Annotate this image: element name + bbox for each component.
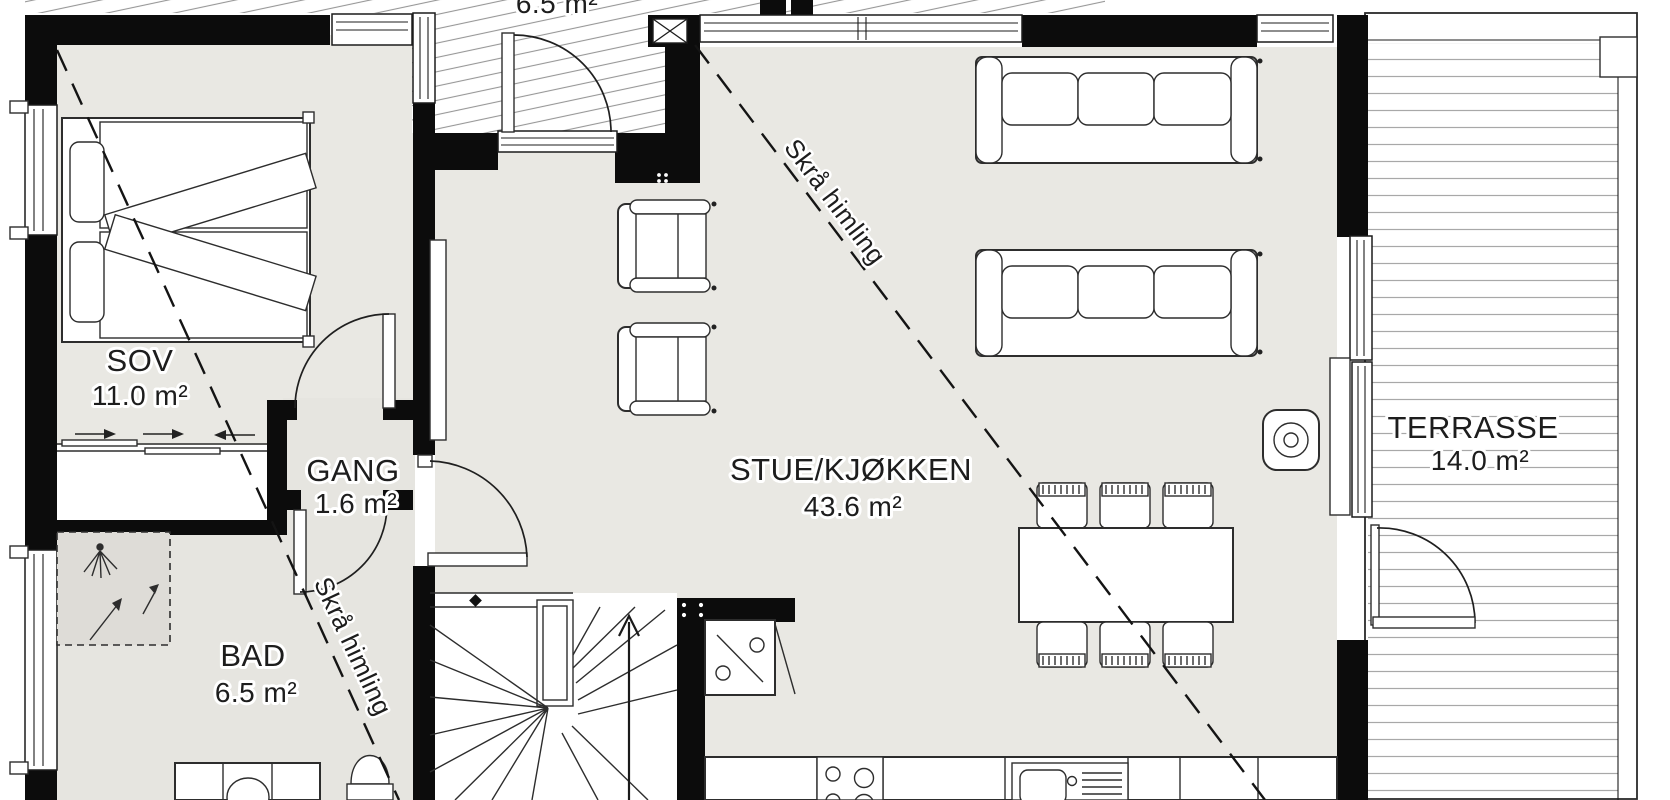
window <box>1350 236 1372 360</box>
terrace-corner-post <box>1600 37 1637 77</box>
dining-chair <box>1163 622 1213 667</box>
room-area-stue-kjokken: 43.6 m² <box>804 491 902 522</box>
room-label-bad: BAD <box>220 638 285 673</box>
double-bed <box>62 112 316 347</box>
window <box>332 14 412 45</box>
tv-bench <box>430 240 446 440</box>
dining-table <box>1019 528 1233 622</box>
sofa <box>976 250 1263 356</box>
column-marker-icon <box>653 19 687 43</box>
kitchen <box>705 757 1337 800</box>
armchair <box>618 200 717 292</box>
terrace <box>1365 13 1637 800</box>
window <box>10 546 57 774</box>
pillow <box>70 242 104 322</box>
dining-chair <box>1100 622 1150 667</box>
window <box>1257 15 1333 42</box>
room-area-bad: 6.5 m² <box>215 677 297 708</box>
dining-chair <box>1163 483 1213 528</box>
sliding-glass-door <box>1330 358 1372 517</box>
room-area-gang: 1.6 m² <box>315 488 397 519</box>
room-area-sov: 11.0 m² <box>92 380 188 411</box>
armchair <box>618 323 717 415</box>
cooktop <box>817 757 883 800</box>
room-label-sov: SOV <box>107 343 174 378</box>
room-label-terrasse: TERRASSE <box>1387 410 1558 445</box>
dining-chair <box>1100 483 1150 528</box>
floor-plan: SOV 11.0 m² GANG 1.6 m² BAD 6.5 m² STUE/… <box>0 0 1670 800</box>
window <box>10 101 57 239</box>
window <box>498 131 617 152</box>
floor-wardrobe <box>57 445 267 522</box>
room-area-terrasse: 14.0 m² <box>1431 445 1529 476</box>
pillow <box>70 142 104 222</box>
vanity-sink <box>175 763 320 800</box>
dining-chair <box>1037 483 1087 528</box>
wood-stove <box>1263 410 1319 470</box>
floor-plan-drawing: SOV 11.0 m² GANG 1.6 m² BAD 6.5 m² STUE/… <box>0 0 1670 800</box>
dining-chair <box>1037 622 1087 667</box>
dining-set <box>1019 483 1233 667</box>
window <box>700 15 1022 42</box>
sofa <box>976 57 1263 163</box>
partial-area-label-top: 6.5 m² <box>516 0 598 19</box>
window <box>413 13 435 103</box>
kitchen-sink <box>1012 763 1128 800</box>
room-label-stue-kjokken: STUE/KJØKKEN <box>730 452 972 487</box>
room-label-gang: GANG <box>306 453 399 488</box>
